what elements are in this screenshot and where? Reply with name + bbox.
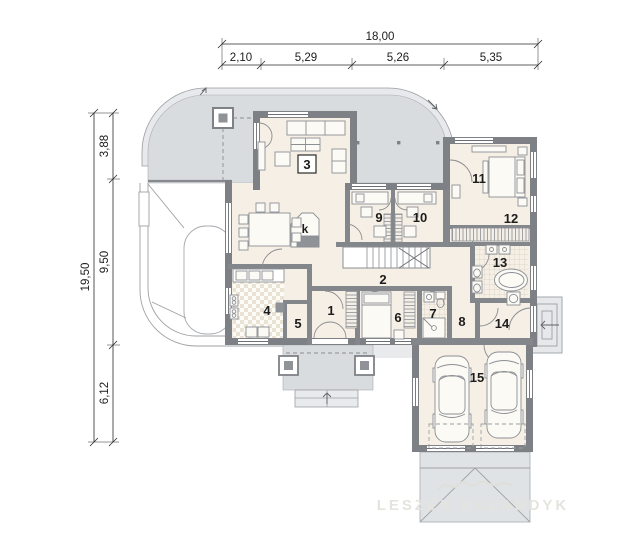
dim-total-width: 18,00 xyxy=(366,31,395,43)
dim-h-seg-1: 3,88 xyxy=(99,135,111,157)
room-label-7: 7 xyxy=(429,306,436,321)
dim-w-seg-2: 5,29 xyxy=(295,52,317,64)
dim-w-seg-1: 2,10 xyxy=(230,52,252,64)
utility-fixtures xyxy=(507,292,520,305)
room-label-15: 15 xyxy=(470,370,484,385)
room-label-12: 12 xyxy=(504,211,518,226)
floor-plan-page: 18,00 2,10 5,29 5,26 5,35 19,50 3,88 9,5… xyxy=(0,0,638,556)
dim-w-seg-3: 5,26 xyxy=(387,52,409,64)
dim-h-seg-3: 6,12 xyxy=(99,382,111,404)
closet-room10 xyxy=(395,214,402,242)
room-label-10: 10 xyxy=(413,210,427,225)
room-label-1: 1 xyxy=(327,303,334,318)
entrance-porch xyxy=(279,345,412,407)
closet-room1 xyxy=(346,291,357,328)
room-label-2: 2 xyxy=(379,272,386,287)
floor-plan-drawing: 18,00 2,10 5,29 5,26 5,35 19,50 3,88 9,5… xyxy=(0,0,638,556)
room-label-6: 6 xyxy=(394,310,401,325)
room-label-8: 8 xyxy=(458,314,465,329)
room-label-14: 14 xyxy=(495,316,510,331)
dim-h-seg-2: 9,50 xyxy=(99,251,111,273)
room-label-4: 4 xyxy=(263,303,271,318)
dimension-left-labels: 19,50 3,88 9,50 6,12 xyxy=(80,135,111,404)
closet-room6 xyxy=(404,292,415,328)
room-label-3: 3 xyxy=(303,157,310,172)
watermark: LESZEK KALANDYK xyxy=(377,482,570,514)
car-right xyxy=(485,352,523,438)
dim-w-seg-4: 5,35 xyxy=(480,52,502,64)
dimension-top-labels: 18,00 2,10 5,29 5,26 5,35 xyxy=(230,31,502,64)
car-left xyxy=(433,356,471,442)
dim-total-height: 19,50 xyxy=(80,263,92,292)
room-label-5: 5 xyxy=(294,316,301,331)
room-label-13: 13 xyxy=(493,255,507,270)
wardrobe-room12 xyxy=(452,228,529,241)
fireplace-label: k xyxy=(302,222,309,236)
room-label-9: 9 xyxy=(375,210,382,225)
porch-steps xyxy=(295,390,358,407)
room-label-11: 11 xyxy=(472,171,486,186)
watermark-name: LESZEK KALANDYK xyxy=(377,497,570,514)
stairs xyxy=(343,247,430,268)
